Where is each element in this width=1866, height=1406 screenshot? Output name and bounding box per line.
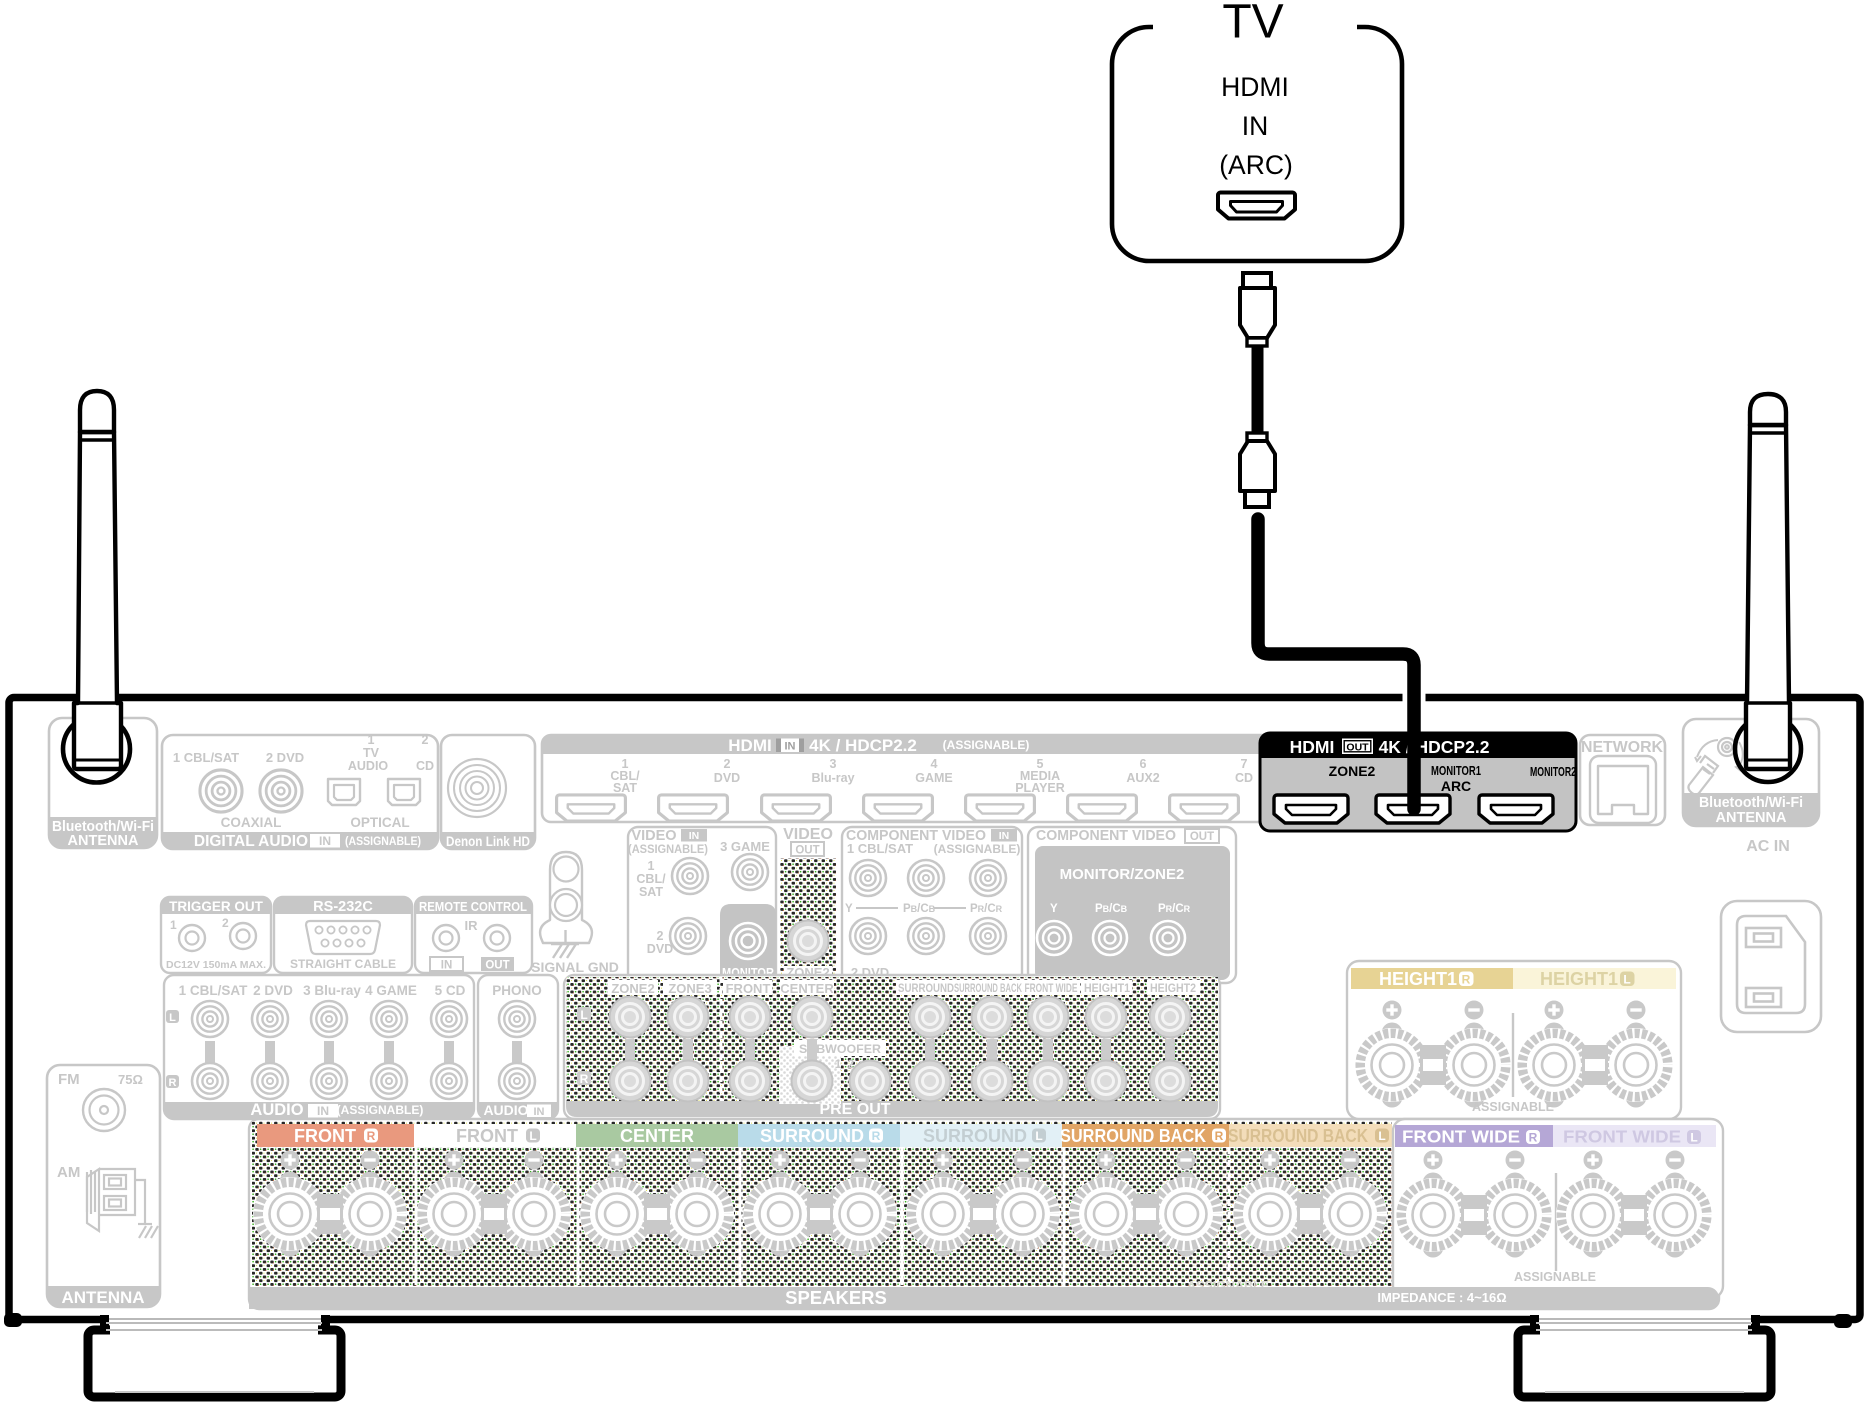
svg-text:5 CD: 5 CD bbox=[435, 983, 466, 998]
svg-text:OUT: OUT bbox=[1346, 742, 1369, 754]
svg-text:IMPEDANCE : 4~16Ω: IMPEDANCE : 4~16Ω bbox=[1377, 1290, 1506, 1305]
svg-text:TV: TV bbox=[1222, 0, 1283, 49]
svg-text:OUT: OUT bbox=[795, 845, 819, 857]
svg-text:HDMI: HDMI bbox=[728, 736, 771, 755]
svg-text:FRONT: FRONT bbox=[456, 1126, 518, 1146]
svg-text:PB/CB: PB/CB bbox=[903, 903, 936, 915]
svg-text:FRONT WIDE: FRONT WIDE bbox=[1563, 1127, 1681, 1147]
svg-text:7: 7 bbox=[1241, 757, 1248, 771]
svg-text:4 GAME: 4 GAME bbox=[365, 983, 417, 998]
svg-text:3 Blu-ray: 3 Blu-ray bbox=[303, 983, 361, 998]
svg-text:ANTENNA: ANTENNA bbox=[61, 1288, 144, 1307]
svg-text:IN: IN bbox=[441, 960, 453, 972]
svg-text:FRONT WIDE: FRONT WIDE bbox=[1402, 1127, 1520, 1147]
svg-text:R: R bbox=[367, 1129, 376, 1143]
svg-text:HDMI: HDMI bbox=[1290, 737, 1335, 757]
svg-text:R: R bbox=[169, 1077, 177, 1089]
svg-text:CBL/: CBL/ bbox=[636, 872, 666, 886]
svg-text:(ASSIGNABLE): (ASSIGNABLE) bbox=[934, 842, 1021, 856]
svg-text:NETWORK: NETWORK bbox=[1581, 739, 1664, 756]
svg-text:FRONT: FRONT bbox=[726, 981, 771, 996]
svg-text:L: L bbox=[1690, 1131, 1697, 1145]
svg-text:PLAYER: PLAYER bbox=[1015, 781, 1065, 795]
svg-text:TV: TV bbox=[363, 746, 380, 760]
svg-text:75Ω: 75Ω bbox=[118, 1072, 143, 1087]
svg-text:MONITOR1: MONITOR1 bbox=[1431, 764, 1481, 778]
svg-text:2: 2 bbox=[724, 757, 731, 771]
svg-text:IN: IN bbox=[999, 830, 1010, 842]
svg-text:DC12V 150mA MAX.: DC12V 150mA MAX. bbox=[166, 959, 266, 971]
svg-text:AUDIO: AUDIO bbox=[348, 759, 389, 773]
svg-text:IN: IN bbox=[319, 834, 331, 848]
svg-text:CENTER: CENTER bbox=[620, 1126, 694, 1146]
svg-text:3 GAME: 3 GAME bbox=[720, 839, 770, 854]
svg-text:AC IN: AC IN bbox=[1746, 838, 1790, 855]
svg-text:FRONT WIDE: FRONT WIDE bbox=[1025, 981, 1078, 995]
svg-text:1: 1 bbox=[648, 859, 655, 873]
svg-text:1: 1 bbox=[170, 918, 177, 932]
svg-text:AUX2: AUX2 bbox=[1126, 771, 1159, 785]
svg-text:R: R bbox=[1215, 1129, 1224, 1143]
svg-text:1: 1 bbox=[368, 733, 375, 747]
svg-text:DIGITAL AUDIO: DIGITAL AUDIO bbox=[194, 833, 308, 850]
svg-text:4K / HDCP2.2: 4K / HDCP2.2 bbox=[809, 736, 917, 755]
svg-text:R: R bbox=[1462, 973, 1471, 987]
svg-text:Y: Y bbox=[1050, 903, 1058, 915]
svg-text:OUT: OUT bbox=[1190, 831, 1214, 843]
svg-text:HEIGHT1: HEIGHT1 bbox=[1540, 969, 1618, 989]
svg-text:AM: AM bbox=[57, 1164, 80, 1181]
svg-text:SURROUND: SURROUND bbox=[923, 1126, 1027, 1146]
svg-text:Bluetooth/Wi-Fi: Bluetooth/Wi-Fi bbox=[1699, 795, 1803, 811]
svg-text:L: L bbox=[580, 1008, 587, 1022]
svg-text:PR/CR: PR/CR bbox=[970, 903, 1003, 915]
svg-text:(ARC): (ARC) bbox=[1219, 150, 1293, 180]
svg-text:R: R bbox=[872, 1129, 881, 1143]
svg-text:ZONE2: ZONE2 bbox=[611, 981, 654, 996]
svg-text:4: 4 bbox=[931, 757, 938, 771]
svg-text:IN: IN bbox=[785, 741, 796, 753]
svg-text:2 DVD: 2 DVD bbox=[266, 750, 304, 765]
svg-text:SAT: SAT bbox=[613, 781, 637, 795]
svg-text:1 CBL/SAT: 1 CBL/SAT bbox=[847, 841, 913, 856]
svg-text:PHONO: PHONO bbox=[492, 983, 542, 998]
svg-text:OUT: OUT bbox=[485, 960, 509, 972]
svg-text:VIDEO: VIDEO bbox=[783, 826, 833, 843]
svg-text:TRIGGER OUT: TRIGGER OUT bbox=[169, 899, 264, 914]
svg-text:L: L bbox=[169, 1012, 176, 1024]
svg-text:SURROUND BACK: SURROUND BACK bbox=[1060, 1126, 1206, 1146]
svg-text:REMOTE CONTROL: REMOTE CONTROL bbox=[419, 899, 527, 914]
svg-text:RS-232C: RS-232C bbox=[313, 899, 373, 915]
svg-text:1: 1 bbox=[835, 1059, 842, 1071]
svg-text:(ASSIGNABLE): (ASSIGNABLE) bbox=[345, 836, 421, 848]
svg-text:SIGNAL GND: SIGNAL GND bbox=[531, 959, 619, 975]
svg-text:AUDIO: AUDIO bbox=[250, 1101, 303, 1119]
svg-text:SURROUND BACK: SURROUND BACK bbox=[954, 981, 1022, 995]
svg-text:ANTENNA: ANTENNA bbox=[68, 833, 139, 849]
svg-text:SAT: SAT bbox=[639, 885, 663, 899]
svg-text:SURROUND: SURROUND bbox=[898, 981, 954, 995]
svg-text:ANTENNA: ANTENNA bbox=[1716, 810, 1787, 826]
svg-text:2: 2 bbox=[222, 916, 229, 930]
svg-text:IN: IN bbox=[689, 830, 700, 842]
svg-text:L: L bbox=[1623, 973, 1630, 987]
svg-text:ARC: ARC bbox=[1441, 778, 1471, 794]
svg-text:Blu-ray: Blu-ray bbox=[811, 771, 854, 785]
svg-text:DVD: DVD bbox=[714, 771, 740, 785]
svg-text:4K / HDCP2.2: 4K / HDCP2.2 bbox=[1379, 737, 1490, 757]
svg-text:STRAIGHT CABLE: STRAIGHT CABLE bbox=[290, 957, 396, 971]
svg-text:SPEAKERS: SPEAKERS bbox=[785, 1287, 887, 1308]
svg-text:DVD: DVD bbox=[647, 942, 673, 956]
svg-text:6: 6 bbox=[1140, 757, 1147, 771]
svg-text:(ASSIGNABLE): (ASSIGNABLE) bbox=[628, 842, 708, 856]
svg-text:ASSIGNABLE: ASSIGNABLE bbox=[1514, 1270, 1596, 1284]
svg-text:SURROUND: SURROUND bbox=[760, 1126, 864, 1146]
svg-text:3: 3 bbox=[830, 757, 837, 771]
svg-text:Denon Link HD: Denon Link HD bbox=[446, 833, 530, 849]
svg-text:R: R bbox=[580, 1072, 589, 1086]
svg-text:1 CBL/SAT: 1 CBL/SAT bbox=[173, 750, 239, 765]
svg-text:CD: CD bbox=[1235, 771, 1253, 785]
svg-text:2: 2 bbox=[848, 1059, 854, 1071]
svg-text:AUDIO: AUDIO bbox=[483, 1102, 528, 1118]
svg-text:IN: IN bbox=[1242, 111, 1269, 141]
svg-text:CD: CD bbox=[416, 759, 434, 773]
svg-text:GAME: GAME bbox=[915, 771, 953, 785]
svg-text:L: L bbox=[529, 1129, 536, 1143]
svg-text:CENTER: CENTER bbox=[780, 981, 834, 996]
svg-text:IR: IR bbox=[465, 918, 479, 933]
svg-text:(ASSIGNABLE): (ASSIGNABLE) bbox=[337, 1103, 424, 1117]
svg-text:COMPONENT VIDEO: COMPONENT VIDEO bbox=[1036, 828, 1176, 844]
svg-text:HDMI: HDMI bbox=[1221, 72, 1289, 102]
svg-text:IN: IN bbox=[534, 1106, 545, 1118]
svg-text:FRONT: FRONT bbox=[294, 1126, 356, 1146]
svg-text:MONITOR/ZONE2: MONITOR/ZONE2 bbox=[1060, 866, 1185, 883]
svg-text:2: 2 bbox=[657, 929, 664, 943]
svg-text:Y: Y bbox=[845, 903, 853, 915]
svg-text:FM: FM bbox=[58, 1071, 80, 1088]
svg-text:PB/CB: PB/CB bbox=[1095, 903, 1128, 915]
svg-text:SURROUND BACK: SURROUND BACK bbox=[1228, 1126, 1368, 1146]
svg-text:HEIGHT1: HEIGHT1 bbox=[1084, 981, 1130, 995]
svg-text:ZONE2: ZONE2 bbox=[1329, 763, 1376, 779]
svg-text:ASSIGNABLE: ASSIGNABLE bbox=[1472, 1100, 1554, 1114]
svg-text:R: R bbox=[1529, 1131, 1538, 1145]
svg-text:MONITOR2: MONITOR2 bbox=[1530, 765, 1576, 779]
svg-text:ZONE3: ZONE3 bbox=[668, 981, 711, 996]
svg-text:2: 2 bbox=[422, 733, 429, 747]
svg-text:HEIGHT2: HEIGHT2 bbox=[1150, 981, 1196, 995]
svg-text:HEIGHT1: HEIGHT1 bbox=[1379, 969, 1457, 989]
svg-text:(ASSIGNABLE): (ASSIGNABLE) bbox=[943, 738, 1030, 752]
svg-text:1 CBL/SAT: 1 CBL/SAT bbox=[179, 983, 249, 998]
svg-text:L: L bbox=[1035, 1129, 1042, 1143]
svg-text:2 DVD: 2 DVD bbox=[253, 983, 293, 998]
svg-text:PR/CR: PR/CR bbox=[1158, 903, 1191, 915]
svg-text:COAXIAL: COAXIAL bbox=[221, 815, 282, 830]
svg-text:OPTICAL: OPTICAL bbox=[350, 815, 409, 830]
svg-text:L: L bbox=[1378, 1129, 1385, 1143]
svg-text:IN: IN bbox=[317, 1104, 329, 1118]
